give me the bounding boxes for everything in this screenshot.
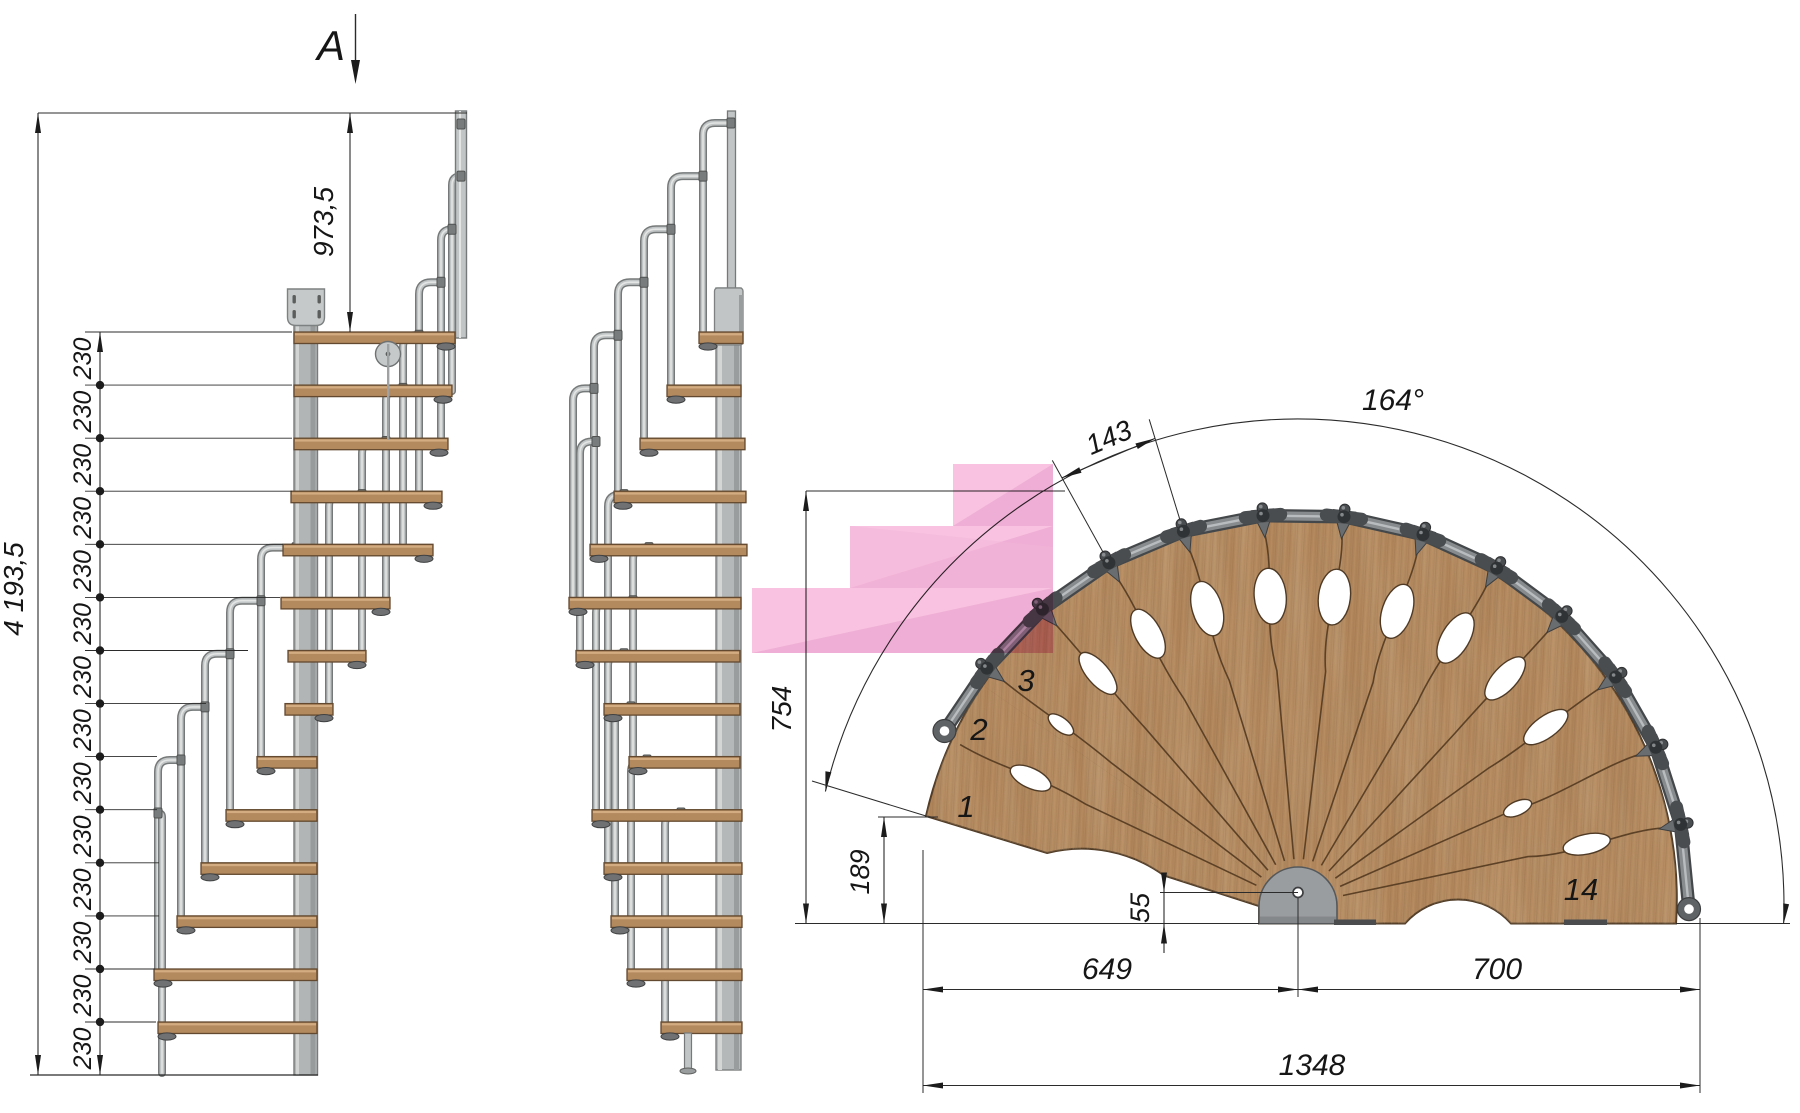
svg-text:2: 2 — [969, 712, 987, 747]
svg-text:230: 230 — [69, 391, 97, 434]
svg-text:230: 230 — [69, 921, 97, 964]
svg-text:973,5: 973,5 — [308, 187, 339, 257]
svg-text:230: 230 — [69, 709, 97, 752]
svg-text:754: 754 — [766, 686, 797, 733]
svg-text:230: 230 — [69, 497, 97, 540]
svg-text:1348: 1348 — [1279, 1049, 1346, 1082]
svg-text:230: 230 — [69, 338, 97, 381]
svg-text:230: 230 — [69, 868, 97, 911]
svg-text:189: 189 — [845, 849, 875, 894]
svg-text:55: 55 — [1125, 892, 1155, 923]
svg-text:1: 1 — [957, 789, 974, 824]
svg-text:4 193,5: 4 193,5 — [0, 542, 29, 636]
svg-text:230: 230 — [69, 550, 97, 593]
svg-text:14: 14 — [1564, 872, 1598, 907]
svg-text:230: 230 — [69, 762, 97, 805]
svg-text:230: 230 — [69, 656, 97, 699]
svg-text:649: 649 — [1082, 953, 1132, 986]
svg-text:230: 230 — [69, 975, 97, 1018]
svg-text:230: 230 — [69, 815, 97, 858]
svg-text:230: 230 — [69, 603, 97, 646]
svg-text:230: 230 — [69, 444, 97, 487]
svg-text:3: 3 — [1017, 663, 1034, 698]
svg-text:230: 230 — [69, 1028, 97, 1071]
svg-text:A: A — [314, 22, 345, 69]
svg-text:700: 700 — [1472, 953, 1522, 986]
svg-text:164°: 164° — [1362, 384, 1424, 417]
